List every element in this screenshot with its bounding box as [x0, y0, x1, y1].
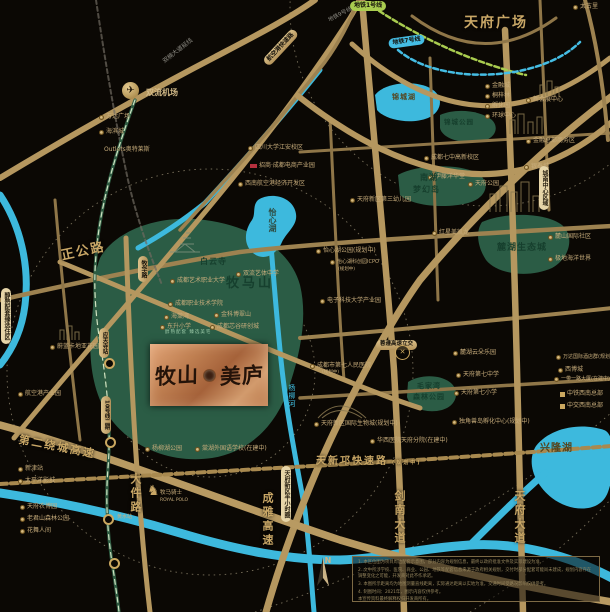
- map-label-text: 梦幻岛: [413, 186, 440, 194]
- poi-marker-icon: [18, 392, 23, 397]
- map-label-text: 金科博翠山: [221, 312, 251, 318]
- map-label-text: 怡心湖: [268, 208, 276, 232]
- map-label-text: 成都职业技术学院: [175, 301, 223, 307]
- map-label: 牧华路: [138, 256, 148, 282]
- poi-marker-icon: [314, 422, 319, 427]
- poi-marker-icon: [524, 165, 529, 170]
- poi-marker-icon: [168, 302, 173, 307]
- map-label-text: 10号线二期: [103, 400, 109, 430]
- map-label-text: 孵化园: [492, 103, 510, 109]
- map-label-text: 环球中心: [492, 113, 516, 119]
- project-plaque: 牧山 美庐: [150, 344, 268, 406]
- poi-marker-icon: [468, 182, 473, 187]
- map-labels-layer: 双流机场万达广场海滨城Outlets奥特莱斯四川大学江安校区招商·成都电商产业园…: [0, 0, 610, 612]
- map-label: 醇熟配套臻选住区: [1, 288, 11, 344]
- map-label-text: 城南中心区域: [541, 170, 547, 206]
- project-name-left: 牧山: [154, 359, 198, 391]
- map-label-text: 海滨城: [106, 129, 124, 135]
- map-label-text: 红星美凯龙: [439, 230, 469, 236]
- map-label: 四川大学江安校区: [248, 145, 303, 151]
- map-label-text: 兴隆湖: [540, 444, 573, 454]
- map-label: 天府新区半小时圈: [281, 466, 291, 522]
- disclaimer-box: 1. 本区位图为项目周边配套示意图，部分内容为规划信息，最终以政府批准文件及实际…: [352, 556, 600, 602]
- map-label: 大件路: [130, 473, 141, 515]
- map-label: (规划中): [392, 461, 422, 466]
- map-label-text: 蔚蓝卡地亚花园城: [57, 344, 105, 350]
- map-label-text: 桐梓林: [492, 93, 510, 99]
- map-label-text: 万达国际酒店群(规划中): [563, 355, 610, 360]
- map-label-text: 海棠湾: [171, 314, 189, 320]
- poi-marker-icon: [310, 364, 315, 369]
- poi-marker-icon: [320, 299, 325, 304]
- map-label-text: 航空港产业园: [25, 391, 61, 397]
- map-label-text: 伊藤洋华堂: [435, 174, 465, 180]
- pill-metro-line1: 地铁1号线: [350, 1, 386, 11]
- map-label-text: 第二绕城高速: [18, 434, 97, 460]
- map-label-text: 招商·成都电商产业园: [259, 163, 315, 169]
- map-label: 极地海洋世界: [548, 256, 591, 262]
- poi-marker-icon: [548, 235, 553, 240]
- map-label-text: 醇熟配套 臻选美宅: [165, 331, 211, 336]
- map-label-text: 锦城公园: [444, 119, 474, 126]
- map-label-text: 成都七中高新校区: [431, 155, 479, 161]
- poi-marker-icon: [316, 249, 321, 254]
- map-label-text: 新津站: [25, 466, 43, 472]
- map-label: 10号线二期: [101, 396, 111, 434]
- map-label: 毛家湾: [417, 383, 441, 390]
- map-label-text: (规划中): [322, 371, 339, 376]
- map-label: 怡心湖科创园ICPO: [330, 260, 379, 265]
- map-label: 天府新区国际生物城(规划中): [314, 421, 398, 427]
- poi-marker-icon: [453, 351, 458, 356]
- map-label: 锦城湖: [392, 94, 416, 101]
- map-label: 牧马骑士: [160, 491, 182, 497]
- map-label-text: 中交西南总部: [567, 403, 603, 409]
- map-label-text: 万达广场: [106, 114, 130, 120]
- map-label-text: 老君山森林公园: [27, 516, 69, 522]
- map-label: 一带一路大厦(在建中): [554, 377, 610, 382]
- map-label: 天府第七小学: [454, 390, 497, 396]
- poi-marker-icon: [250, 164, 257, 169]
- poi-marker-icon: [210, 325, 215, 330]
- map-label: 金科博翠山: [214, 312, 251, 318]
- map-label-text: 天府新区半小时圈: [283, 470, 289, 518]
- poi-marker-icon: [558, 368, 563, 373]
- poi-marker-icon: [195, 447, 200, 452]
- map-label-text: 地铁9号线: [328, 7, 353, 24]
- map-label-text: 西南航空港经济开发区: [245, 181, 305, 187]
- interchange-icon: ✕: [395, 345, 410, 360]
- map-label: 中交西南总部: [560, 403, 603, 409]
- map-label-text: 四川大学江安校区: [255, 145, 303, 151]
- map-label-text: 怡心湖公园(规划中): [323, 248, 376, 254]
- poi-marker-icon: [20, 505, 25, 510]
- map-label-text: 牧马骑士: [160, 491, 182, 497]
- map-label: 孵化园: [485, 103, 510, 109]
- map-label-text: 电子科技大学产业园: [327, 298, 381, 304]
- map-label: 棠湖外国语学校(在建中): [195, 446, 267, 452]
- map-label-text: 黄水站: [117, 515, 132, 520]
- map-label-text: 大件路: [130, 473, 141, 515]
- map-label: 应天寺站: [99, 328, 109, 358]
- map-label: 第二绕城高速: [18, 434, 97, 460]
- map-label: 怡心湖: [268, 208, 276, 232]
- disclaimer-line: 3. 本图所示距离均为地图测量直线距离，实际通达距离以实地为准，交通时间受路况影…: [358, 582, 594, 589]
- poi-marker-icon: [485, 114, 490, 119]
- poi-marker-icon: [432, 231, 437, 236]
- poi-marker-icon: [454, 391, 459, 396]
- map-label-text: 南湖: [420, 174, 438, 182]
- map-label: 成都职业技术学院: [168, 301, 223, 307]
- project-name-right: 美庐: [219, 359, 263, 391]
- poi-marker-icon: [330, 260, 335, 265]
- map-label: 金融总部商务区: [526, 138, 575, 144]
- map-label-text: 地铁1号线: [354, 3, 382, 9]
- map-label-text: 棠湖外国语学校(在建中): [202, 446, 267, 452]
- disclaimer-line: 本宣传资料最终解释权归开发商所有。: [358, 597, 594, 602]
- poi-marker-icon: [573, 5, 578, 10]
- poi-marker-icon: [145, 447, 150, 452]
- map-label-text: 成都艺术职业大学: [177, 278, 225, 284]
- map-label-text: 醇熟配套臻选住区: [3, 292, 9, 340]
- map-label: 怡心湖公园(规划中): [316, 248, 376, 254]
- map-label-text: (规划中): [392, 461, 422, 466]
- map-label: 杨柳湖公园: [145, 446, 182, 452]
- map-label-text: 剑南大道: [394, 490, 405, 546]
- map-label: 麓山国际社区: [548, 234, 591, 240]
- poi-marker-icon: [20, 517, 25, 522]
- poi-marker-icon: [556, 355, 561, 360]
- airplane-icon: ✈: [122, 82, 139, 99]
- map-label: 航空港产业园: [18, 391, 61, 397]
- map-label-text: 麓山国际社区: [555, 234, 591, 240]
- map-label-text: 成雅高速: [262, 492, 273, 548]
- label-xinglong-lake: 兴隆湖: [540, 444, 573, 454]
- map-label: 中铁西南总部: [560, 391, 603, 397]
- map-label-text: 锦城湖: [392, 94, 416, 101]
- poi-marker-icon: [485, 84, 490, 89]
- map-label: 新会展中心: [526, 97, 563, 103]
- map-label-text: 双流机场: [146, 89, 178, 97]
- map-label: 华西医院天府分院(在建中): [370, 438, 448, 444]
- map-label-text: 天府第七中学: [463, 372, 499, 378]
- map-label: 航空港快速路: [262, 28, 299, 67]
- poi-marker-icon: [20, 529, 25, 534]
- map-label: 成都市第七人民医院: [310, 363, 371, 369]
- map-label-text: 新会展中心: [533, 97, 563, 103]
- poi-marker-icon: [99, 115, 104, 120]
- map-label: (规划中): [338, 268, 355, 273]
- map-label-text: 华西医院天府分院(在建中): [377, 438, 448, 444]
- map-label: 花舞人间: [20, 528, 51, 534]
- map-label: 天府农博园: [20, 504, 57, 510]
- label-zhenggong-road: 正公路: [60, 241, 107, 263]
- compass-needle-icon: [313, 556, 333, 590]
- poi-marker-icon: [560, 404, 565, 409]
- map-label: 天府第七中学: [456, 372, 499, 378]
- poi-marker-icon: [248, 146, 253, 151]
- poi-marker-icon: [526, 139, 531, 144]
- poi-marker-icon: [452, 420, 457, 425]
- map-label-text: ROYAL POLO: [160, 499, 188, 504]
- metro-station-icon: [104, 358, 115, 369]
- map-label: 剑南大道: [394, 490, 405, 546]
- map-label: 白云寺: [200, 258, 227, 266]
- map-label-text: 双楠大道延线: [162, 38, 194, 65]
- map-label: 桐梓林: [485, 93, 510, 99]
- metro-station-icon: [103, 514, 114, 525]
- poi-marker-icon: [18, 479, 23, 484]
- map-label-text: 天府新区第三幼儿园: [357, 197, 411, 203]
- map-label: 成都艺术职业大学: [170, 278, 225, 284]
- map-label: 梦幻岛: [413, 186, 440, 194]
- map-label-text: 杨柳河: [288, 384, 295, 408]
- map-label: 成都七中高新校区: [424, 155, 479, 161]
- map-label: 金融城: [485, 83, 510, 89]
- poi-marker-icon: [214, 313, 219, 318]
- map-label: 双楠大道延线: [162, 38, 194, 65]
- pill-metro-line7: 地铁7号线: [388, 34, 425, 49]
- map-label: 南湖: [420, 174, 438, 182]
- map-label-text: 白云寺: [200, 258, 227, 266]
- map-label-text: 太古里: [580, 4, 598, 10]
- map-label-text: 应天寺站: [101, 332, 107, 354]
- map-label-text: 怡心湖科创园ICPO: [337, 260, 379, 265]
- poi-marker-icon: [485, 104, 490, 109]
- metro-station-icon: [105, 437, 116, 448]
- map-label: 森林公园: [413, 394, 445, 401]
- map-label-text: 麓湖云朵乐园: [460, 350, 496, 356]
- map-label-text: 毛家湾: [417, 383, 441, 390]
- map-label: 海滨城: [99, 129, 124, 135]
- map-label-text: 金融总部商务区: [533, 138, 575, 144]
- label-muma-mountain: 牧马山: [226, 277, 274, 290]
- poi-marker-icon: [485, 94, 490, 99]
- map-label-text: 天府广场: [464, 16, 528, 30]
- poi-marker-icon: [238, 182, 243, 187]
- map-label-text: 中铁西南总部: [567, 391, 603, 397]
- map-label: 红星美凯龙: [432, 230, 469, 236]
- map-label: 西博城: [558, 367, 583, 373]
- map-label: ROYAL POLO: [160, 499, 188, 504]
- map-label-text: 成都芯谷研创城: [217, 324, 259, 330]
- map-label-text: 麓湖生态城: [497, 244, 547, 253]
- map-label: 天府新区第三幼儿园: [350, 197, 411, 203]
- poi-marker-icon: [456, 373, 461, 378]
- map-label: 万达广场: [99, 114, 130, 120]
- map-label: 蔚蓝卡地亚花园城: [50, 344, 105, 350]
- map-label-text: 独角兽岛孵化中心(规划中): [459, 419, 530, 425]
- project-seal-icon: [203, 369, 216, 382]
- map-label: 地铁9号线: [328, 7, 353, 24]
- poi-marker-icon: [554, 377, 559, 382]
- map-label-text: 西博城: [565, 367, 583, 373]
- metro-station-icon: [109, 558, 120, 569]
- compass: N: [313, 556, 343, 604]
- disclaimer-line: 1. 本区位图为项目周边配套示意图，部分内容为规划信息，最终以政府批准文件及实际…: [358, 560, 594, 567]
- label-tianfu-square: 天府广场: [464, 16, 528, 30]
- polo-horse-icon: ♞: [147, 484, 160, 498]
- poi-marker-icon: [160, 325, 165, 330]
- poi-marker-icon: [526, 98, 531, 103]
- label-shuangliu-airport: 双流机场: [146, 89, 178, 97]
- poi-marker-icon: [18, 467, 23, 472]
- poi-marker-icon: [370, 439, 375, 444]
- map-label-text: 花舞人间: [27, 528, 51, 534]
- map-label: 醇熟配套 臻选美宅: [165, 331, 211, 336]
- poi-marker-icon: [560, 392, 565, 397]
- map-label-text: 地铁7号线: [392, 37, 421, 47]
- map-label: 招商·成都电商产业园: [250, 163, 315, 169]
- map-label-text: 天府新区国际生物城(规划中): [321, 421, 398, 427]
- disclaimer-line: 2. 文中所涉学校、医院、商业、公园、地铁等配套信息来源于政府相关规划，交付时部…: [358, 568, 594, 581]
- map-label-text: 天府第七小学: [461, 390, 497, 396]
- location-map: 双流机场万达广场海滨城Outlets奥特莱斯四川大学江安校区招商·成都电商产业园…: [0, 0, 610, 612]
- map-label: 环球中心: [485, 113, 516, 119]
- map-label: 新津站: [18, 466, 43, 472]
- map-label-text: 牧马山: [226, 277, 274, 290]
- map-label: 天府大道: [514, 490, 525, 546]
- map-label-text: 正公路: [60, 241, 107, 263]
- map-label: 天府公园: [468, 181, 499, 187]
- map-label: 成都芯谷研创城: [210, 324, 259, 330]
- map-label-text: 森林公园: [413, 394, 445, 401]
- map-label: 成雅高速: [262, 492, 273, 548]
- map-label-text: 天府农博园: [27, 504, 57, 510]
- poi-marker-icon: [164, 315, 169, 320]
- map-label: 锦城公园: [444, 119, 474, 126]
- map-label-text: 成都市第七人民医院: [317, 363, 371, 369]
- map-label: 麓湖云朵乐园: [453, 350, 496, 356]
- map-label: 海棠湾: [164, 314, 189, 320]
- map-label-text: 极地海洋世界: [555, 256, 591, 262]
- map-label: 天新邛快速路: [316, 457, 388, 467]
- poi-marker-icon: [548, 257, 553, 262]
- poi-marker-icon: [424, 156, 429, 161]
- map-label: 万达国际酒店群(规划中): [556, 355, 610, 360]
- map-label: 老君山森林公园: [20, 516, 69, 522]
- map-label-text: Outlets奥特莱斯: [104, 147, 150, 153]
- map-label-text: 航空港快速路: [266, 32, 295, 62]
- map-label-text: 天新邛快速路: [316, 457, 388, 467]
- map-label: 杨柳河: [288, 384, 295, 408]
- map-label: (规划中): [322, 371, 339, 376]
- map-label-text: (规划中): [338, 268, 355, 273]
- poi-marker-icon: [50, 345, 55, 350]
- map-label: Outlets奥特莱斯: [104, 147, 150, 153]
- map-label: 太平洋影城: [18, 478, 55, 484]
- map-label: 电子科技大学产业园: [320, 298, 381, 304]
- map-label-text: 金融城: [492, 83, 510, 89]
- map-label: 黄水站: [117, 515, 132, 520]
- map-label-text: 杨柳湖公园: [152, 446, 182, 452]
- map-label: 麓湖生态城: [497, 244, 547, 253]
- map-label: 太古里: [573, 4, 598, 10]
- map-label-text: 天府公园: [475, 181, 499, 187]
- poi-marker-icon: [170, 279, 175, 284]
- map-label-text: 牧华路: [140, 260, 146, 278]
- map-label: 西南航空港经济开发区: [238, 181, 305, 187]
- map-label-text: 太平洋影城: [25, 478, 55, 484]
- map-label: 城南中心区域: [539, 166, 549, 210]
- map-label-text: 一带一路大厦(在建中): [561, 377, 610, 382]
- map-label: 独角兽岛孵化中心(规划中): [452, 419, 530, 425]
- map-label-text: 天府大道: [514, 490, 525, 546]
- disclaimer-line: 4. 制图时间：2021年，图示内容仅供参考。: [358, 590, 594, 597]
- poi-marker-icon: [350, 198, 355, 203]
- poi-marker-icon: [99, 130, 104, 135]
